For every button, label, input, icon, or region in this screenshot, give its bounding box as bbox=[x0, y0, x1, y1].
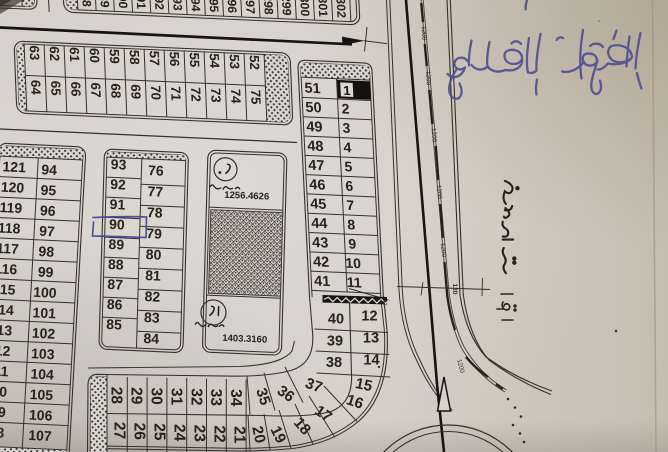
svg-text:64: 64 bbox=[28, 80, 44, 96]
svg-text:2: 2 bbox=[341, 100, 350, 116]
svg-text:10: 10 bbox=[345, 255, 362, 272]
svg-text:110: 110 bbox=[0, 383, 8, 400]
svg-text:98: 98 bbox=[38, 243, 55, 260]
svg-text:51: 51 bbox=[304, 80, 321, 97]
svg-text:118: 118 bbox=[0, 219, 21, 236]
svg-text:114: 114 bbox=[0, 301, 14, 318]
svg-text:39: 39 bbox=[327, 333, 343, 349]
svg-text:289: 289 bbox=[97, 0, 112, 8]
svg-text:100: 100 bbox=[33, 284, 57, 301]
svg-text:34: 34 bbox=[227, 389, 244, 407]
svg-text:301: 301 bbox=[315, 0, 330, 18]
svg-text:9: 9 bbox=[348, 236, 357, 252]
svg-text:90: 90 bbox=[109, 216, 125, 233]
svg-text:85: 85 bbox=[106, 316, 122, 333]
svg-text:59: 59 bbox=[107, 49, 123, 65]
svg-text:4: 4 bbox=[343, 139, 352, 155]
svg-text:73: 73 bbox=[208, 87, 224, 103]
svg-text:71: 71 bbox=[168, 86, 184, 102]
svg-text:97: 97 bbox=[39, 223, 56, 240]
svg-text:298: 298 bbox=[261, 0, 276, 15]
svg-text:1256.4626: 1256.4626 bbox=[224, 190, 269, 203]
svg-text:88: 88 bbox=[108, 256, 124, 273]
svg-text:93: 93 bbox=[111, 156, 127, 173]
svg-text:81: 81 bbox=[145, 267, 161, 284]
svg-text:42: 42 bbox=[313, 254, 330, 271]
svg-text:28: 28 bbox=[108, 387, 125, 405]
svg-text:21: 21 bbox=[231, 426, 248, 444]
svg-text:11: 11 bbox=[346, 274, 362, 291]
svg-text:79: 79 bbox=[146, 225, 162, 242]
svg-text:120: 120 bbox=[0, 179, 24, 196]
svg-text:27: 27 bbox=[111, 422, 128, 439]
svg-text:102: 102 bbox=[31, 325, 55, 342]
svg-text:115: 115 bbox=[0, 281, 16, 298]
svg-text:113: 113 bbox=[0, 322, 13, 339]
svg-text:80: 80 bbox=[146, 246, 162, 263]
svg-text:78: 78 bbox=[147, 204, 163, 221]
svg-text:5: 5 bbox=[344, 158, 353, 174]
svg-text:89: 89 bbox=[108, 236, 124, 253]
svg-text:120: 120 bbox=[451, 284, 458, 295]
svg-text:33: 33 bbox=[207, 389, 224, 407]
svg-text:14: 14 bbox=[363, 352, 379, 368]
svg-text:63: 63 bbox=[27, 45, 43, 61]
svg-text:112: 112 bbox=[0, 342, 11, 359]
svg-text:83: 83 bbox=[144, 309, 160, 326]
svg-text:58: 58 bbox=[127, 49, 143, 65]
svg-text:84: 84 bbox=[143, 330, 159, 347]
svg-text:293: 293 bbox=[170, 0, 185, 11]
svg-text:61: 61 bbox=[67, 47, 83, 63]
svg-text:107: 107 bbox=[28, 427, 52, 444]
svg-text:20: 20 bbox=[248, 425, 268, 445]
svg-text:25: 25 bbox=[151, 423, 168, 441]
svg-text:104: 104 bbox=[30, 366, 54, 383]
svg-text:31: 31 bbox=[167, 388, 184, 406]
svg-text:77: 77 bbox=[147, 183, 163, 200]
svg-text:46: 46 bbox=[309, 177, 326, 194]
svg-text:7: 7 bbox=[346, 197, 355, 213]
svg-text:47: 47 bbox=[308, 158, 325, 175]
svg-text:292: 292 bbox=[151, 0, 166, 10]
svg-text:296: 296 bbox=[224, 0, 239, 14]
svg-text:94: 94 bbox=[41, 161, 58, 178]
svg-text:40: 40 bbox=[328, 311, 344, 327]
svg-text:45: 45 bbox=[310, 196, 327, 213]
svg-text:86: 86 bbox=[107, 296, 123, 313]
svg-text:56: 56 bbox=[167, 51, 183, 67]
svg-text:1200: 1200 bbox=[424, 71, 432, 86]
svg-text:1200: 1200 bbox=[430, 128, 438, 143]
svg-text:54: 54 bbox=[207, 53, 223, 69]
svg-text:91: 91 bbox=[109, 196, 125, 213]
svg-text:101: 101 bbox=[32, 304, 56, 321]
svg-text:62: 62 bbox=[47, 46, 63, 62]
svg-text:23: 23 bbox=[191, 425, 208, 443]
svg-text:30: 30 bbox=[148, 388, 165, 405]
svg-text:290: 290 bbox=[115, 0, 130, 9]
svg-text:1200: 1200 bbox=[420, 26, 428, 41]
svg-text:103: 103 bbox=[31, 345, 55, 362]
svg-text:121: 121 bbox=[2, 158, 26, 175]
svg-text:41: 41 bbox=[314, 273, 331, 290]
svg-text:13: 13 bbox=[363, 330, 379, 346]
svg-text:68: 68 bbox=[108, 83, 124, 99]
svg-text:67: 67 bbox=[88, 82, 104, 98]
svg-text:99: 99 bbox=[37, 264, 54, 281]
svg-text:74: 74 bbox=[228, 88, 244, 104]
svg-text:117: 117 bbox=[0, 240, 19, 257]
svg-text:44: 44 bbox=[311, 216, 328, 233]
svg-text:300: 300 bbox=[297, 0, 312, 17]
svg-text:6: 6 bbox=[345, 178, 354, 194]
svg-text:291: 291 bbox=[133, 0, 148, 10]
svg-text:55: 55 bbox=[187, 52, 203, 68]
svg-text:8: 8 bbox=[347, 216, 356, 232]
svg-text:1: 1 bbox=[343, 83, 351, 98]
svg-text:1200: 1200 bbox=[435, 185, 443, 200]
svg-text:294: 294 bbox=[188, 0, 203, 12]
svg-text:52: 52 bbox=[247, 55, 263, 71]
svg-text:49: 49 bbox=[306, 119, 323, 136]
svg-text:53: 53 bbox=[227, 54, 243, 70]
svg-text:92: 92 bbox=[110, 176, 126, 193]
svg-text:87: 87 bbox=[107, 276, 123, 293]
svg-text:65: 65 bbox=[48, 80, 64, 96]
svg-text:297: 297 bbox=[242, 0, 257, 14]
svg-text:69: 69 bbox=[128, 84, 144, 100]
svg-text:119: 119 bbox=[0, 199, 23, 216]
svg-text:24: 24 bbox=[171, 424, 188, 442]
svg-text:1403.3160: 1403.3160 bbox=[222, 333, 267, 346]
svg-text:96: 96 bbox=[40, 202, 57, 219]
svg-text:116: 116 bbox=[0, 260, 18, 277]
svg-text:105: 105 bbox=[29, 386, 53, 403]
svg-text:26: 26 bbox=[131, 423, 148, 441]
svg-text:70: 70 bbox=[148, 85, 164, 101]
svg-text:288: 288 bbox=[79, 0, 94, 7]
svg-text:295: 295 bbox=[206, 0, 221, 13]
svg-text:48: 48 bbox=[307, 138, 324, 155]
svg-text:12: 12 bbox=[361, 308, 377, 324]
svg-text:43: 43 bbox=[312, 235, 329, 252]
svg-text:57: 57 bbox=[147, 50, 163, 66]
svg-text:302: 302 bbox=[333, 0, 348, 18]
svg-text:22: 22 bbox=[211, 425, 228, 442]
svg-text:1200: 1200 bbox=[439, 243, 447, 258]
svg-text:111: 111 bbox=[0, 362, 9, 379]
svg-text:76: 76 bbox=[148, 162, 164, 179]
svg-text:38: 38 bbox=[326, 355, 342, 371]
svg-text:50: 50 bbox=[305, 100, 322, 117]
svg-text:82: 82 bbox=[144, 288, 160, 305]
svg-text:29: 29 bbox=[128, 387, 145, 405]
svg-text:299: 299 bbox=[279, 0, 294, 16]
svg-text:95: 95 bbox=[40, 182, 57, 199]
svg-text:72: 72 bbox=[188, 87, 204, 103]
svg-text:3: 3 bbox=[342, 120, 351, 136]
svg-text:106: 106 bbox=[29, 406, 53, 423]
svg-text:75: 75 bbox=[248, 89, 264, 105]
svg-text:32: 32 bbox=[187, 388, 204, 405]
svg-text:109: 109 bbox=[0, 403, 6, 420]
svg-text:66: 66 bbox=[68, 81, 84, 97]
svg-text:60: 60 bbox=[87, 48, 103, 64]
